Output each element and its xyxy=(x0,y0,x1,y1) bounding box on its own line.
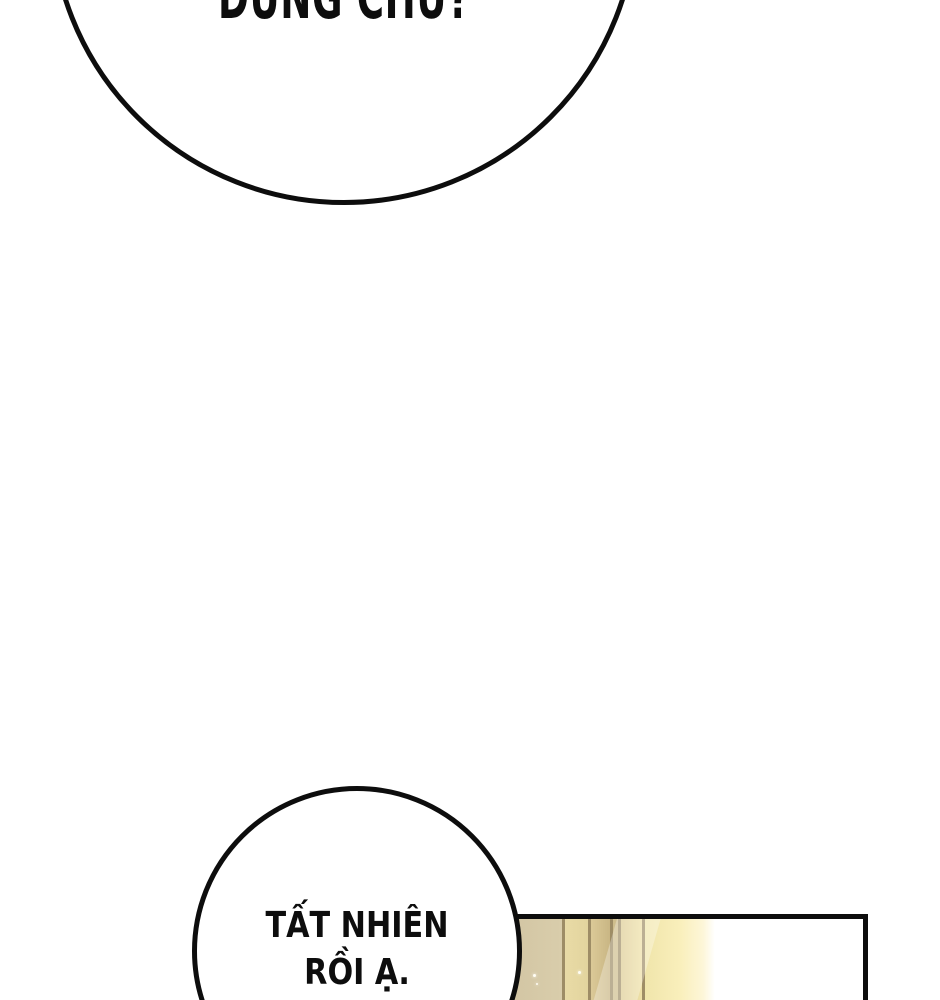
speech-line-2: RỒI Ạ. xyxy=(223,949,492,996)
speech-bubble-top-text: ĐÚNG CHỨ? xyxy=(164,0,524,30)
wall-glow-fade xyxy=(645,919,863,1000)
wall-plank xyxy=(565,919,588,1000)
speech-bubble-bottom: TẤT NHIÊN RỒI Ạ. xyxy=(192,786,522,1000)
sparkle-dot xyxy=(578,971,581,974)
speech-bubble-top: ĐÚNG CHỨ? xyxy=(49,0,639,205)
speech-line-1: TẤT NHIÊN xyxy=(223,902,492,949)
comic-page: ĐÚNG CHỨ? TẤT NHIÊN RỒI Ạ. xyxy=(0,0,940,1000)
speech-bubble-bottom-text: TẤT NHIÊN RỒI Ạ. xyxy=(223,902,492,996)
wall-plank xyxy=(591,919,610,1000)
sparkle-dot xyxy=(536,983,538,985)
scene-panel xyxy=(508,914,868,1000)
wall-plank xyxy=(621,919,642,1000)
wall-paneling xyxy=(508,919,863,1000)
sparkle-dot xyxy=(533,974,536,977)
